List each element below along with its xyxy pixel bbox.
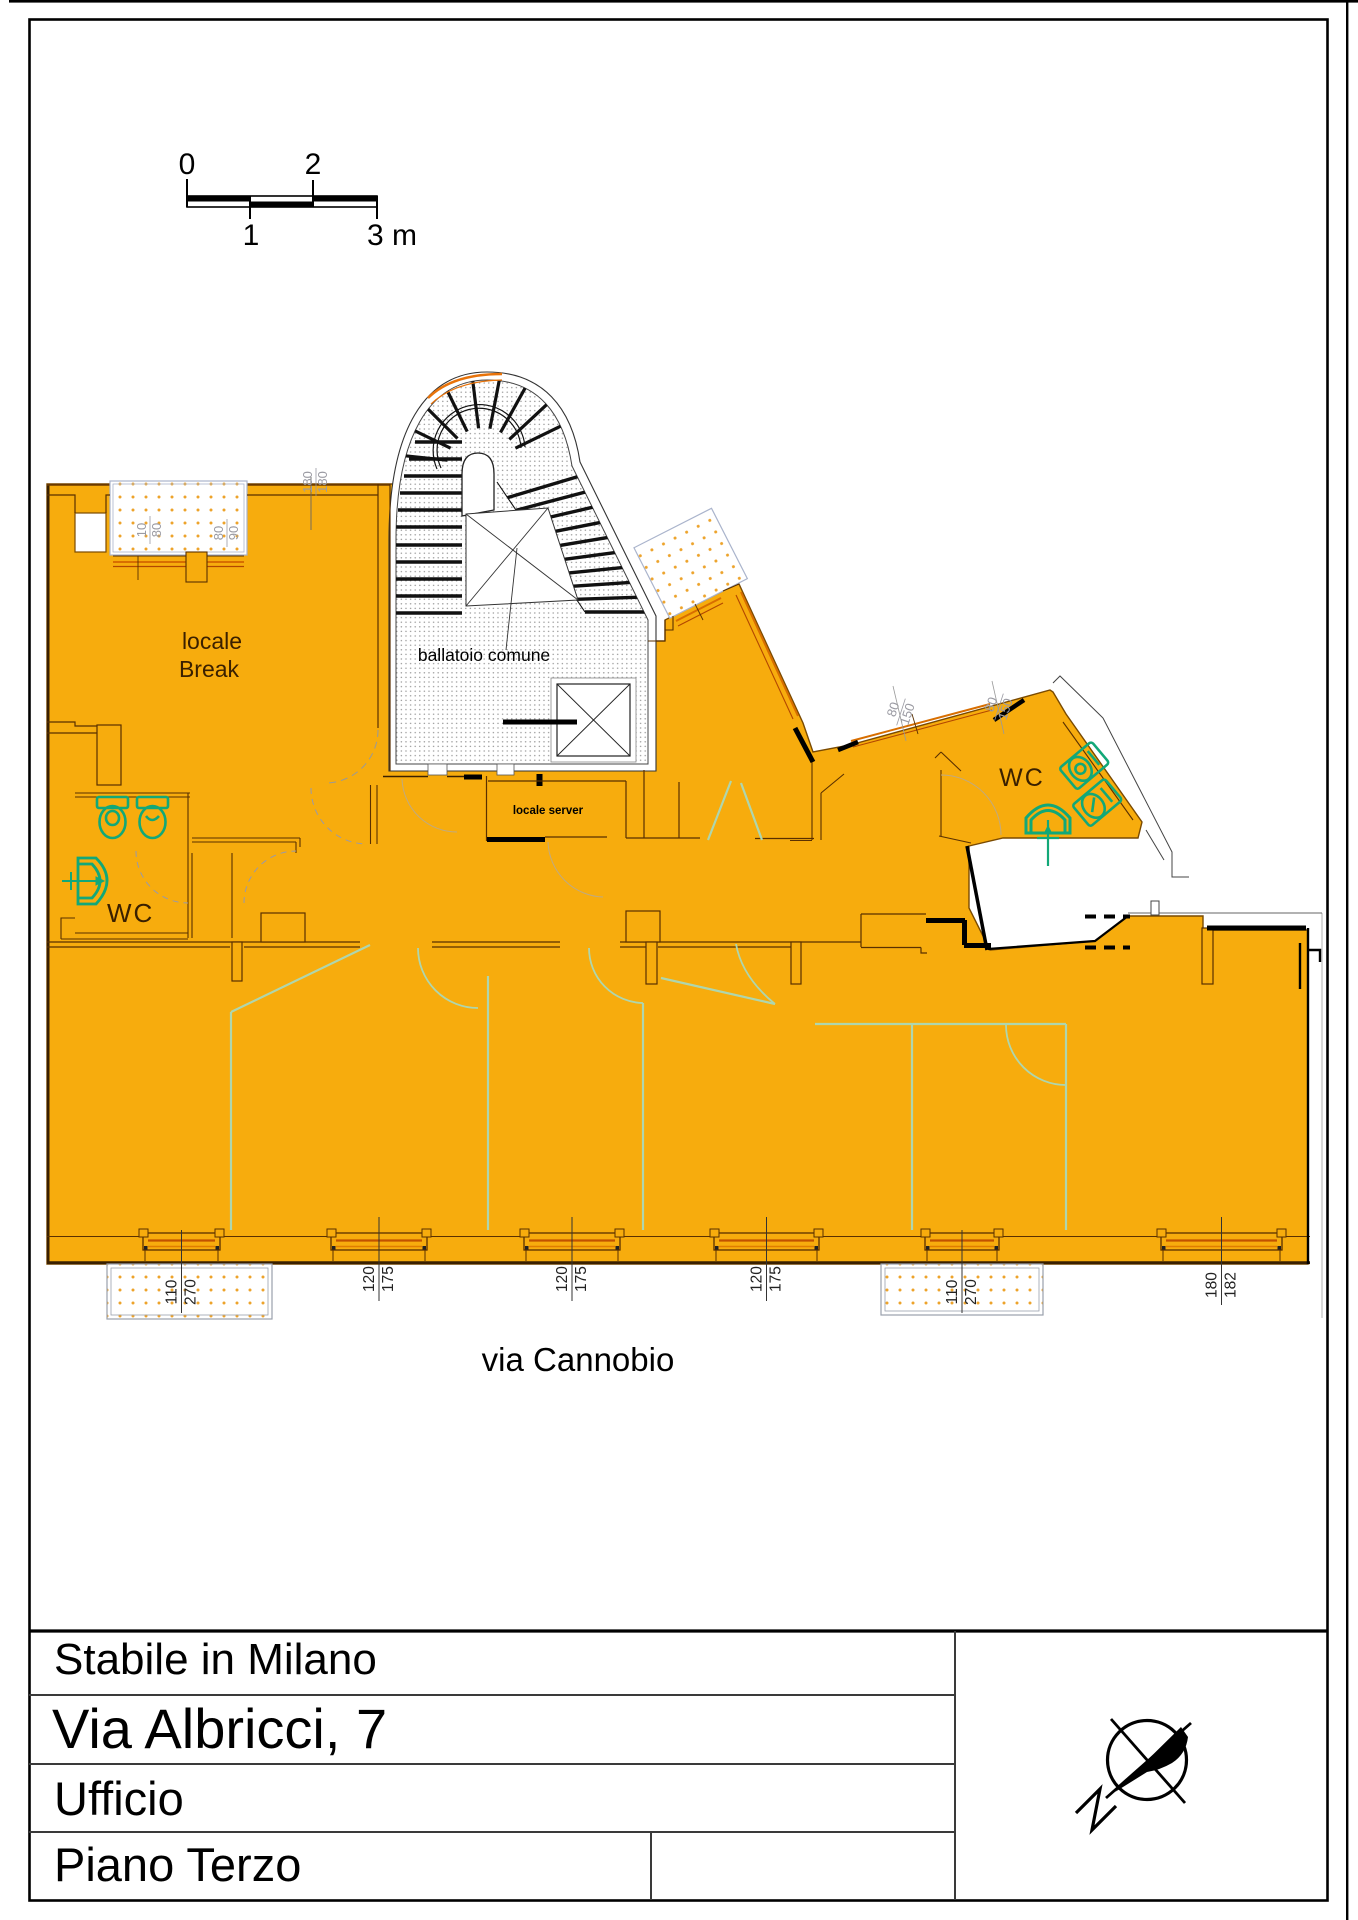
- svg-text:180: 180: [1204, 1272, 1221, 1298]
- svg-text:Break: Break: [179, 656, 240, 682]
- svg-text:WC: WC: [999, 764, 1045, 792]
- svg-text:0: 0: [179, 148, 196, 181]
- svg-text:175: 175: [380, 1266, 397, 1292]
- svg-text:90: 90: [226, 526, 241, 540]
- svg-text:180: 180: [315, 471, 330, 493]
- svg-text:Stabile in Milano: Stabile in Milano: [54, 1635, 377, 1684]
- svg-text:120: 120: [361, 1266, 378, 1292]
- svg-text:ballatoio comune: ballatoio comune: [418, 645, 550, 665]
- svg-text:270: 270: [963, 1279, 980, 1305]
- svg-text:110: 110: [164, 1279, 181, 1304]
- svg-text:175: 175: [573, 1266, 590, 1292]
- svg-text:180: 180: [300, 471, 315, 493]
- svg-text:120: 120: [749, 1266, 766, 1292]
- svg-text:WC: WC: [107, 898, 154, 928]
- svg-text:Piano Terzo: Piano Terzo: [54, 1838, 301, 1891]
- svg-text:10: 10: [134, 523, 149, 537]
- svg-text:via Cannobio: via Cannobio: [482, 1341, 675, 1378]
- svg-text:110: 110: [944, 1279, 961, 1304]
- svg-text:270: 270: [183, 1279, 200, 1305]
- svg-text:2: 2: [305, 148, 322, 181]
- svg-text:locale server: locale server: [513, 805, 584, 817]
- svg-text:locale: locale: [182, 628, 242, 654]
- svg-text:3 m: 3 m: [367, 219, 417, 252]
- svg-text:1: 1: [243, 219, 260, 252]
- svg-text:120: 120: [554, 1266, 571, 1292]
- svg-text:80: 80: [211, 526, 226, 540]
- svg-text:Via Albricci, 7: Via Albricci, 7: [52, 1697, 387, 1760]
- svg-text:Ufficio: Ufficio: [54, 1772, 184, 1825]
- svg-text:80: 80: [149, 523, 164, 537]
- svg-text:182: 182: [1223, 1272, 1240, 1298]
- svg-text:175: 175: [768, 1266, 785, 1292]
